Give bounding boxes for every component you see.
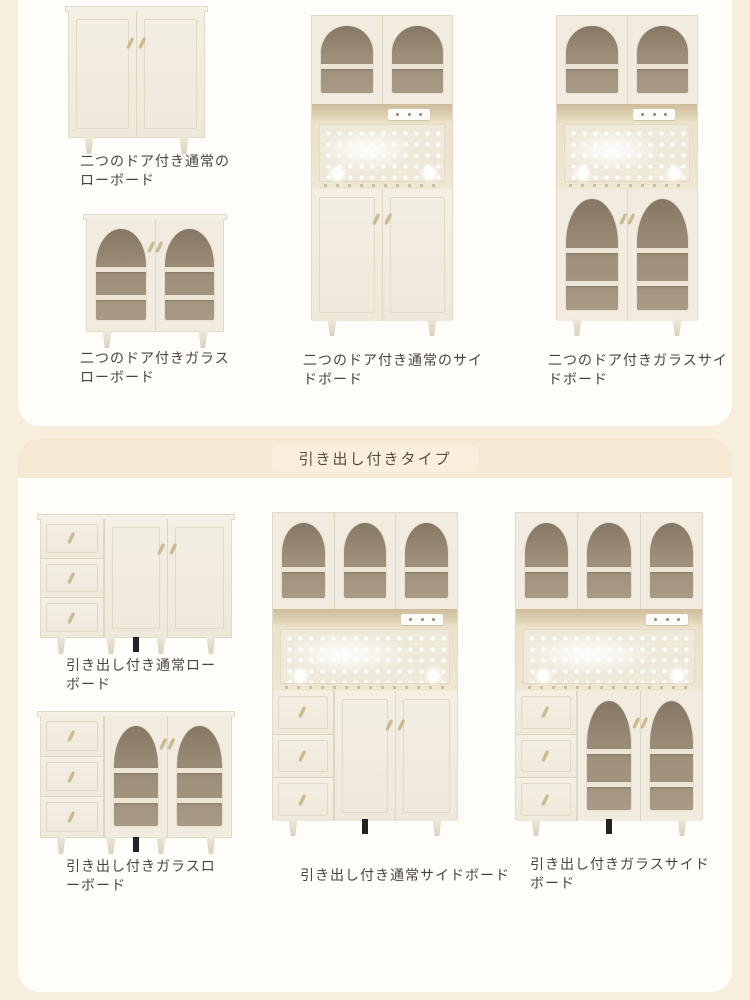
upper-glass-section [516,513,702,609]
arched-glass-window [281,522,326,599]
section-header-band: 引き出し付きタイプ [18,438,732,478]
glass-door [155,219,224,331]
glass-door [87,219,155,331]
drawer-column [41,716,104,837]
outlet-socket-dot [432,618,435,621]
vent-slots [528,686,690,689]
door-inset-panel [144,19,197,129]
cabinet-door [395,691,457,821]
lower-glass-section [557,189,697,321]
glass-door [577,691,639,821]
shelf-line [587,782,630,787]
shelf-line [637,248,689,253]
power-outlet [633,109,675,120]
arched-glass-window [320,25,374,94]
arched-glass-window [95,228,147,321]
arched-glass-window [565,25,619,94]
vent-slots [569,184,685,187]
product-label: 二つのドア付きガラスローボード [80,349,238,387]
shelf-line [566,281,618,286]
glass-door [640,691,702,821]
shelf-line [525,567,568,572]
outlet-socket-dot [654,618,657,621]
shelf-line [637,64,689,69]
cabinet-figure-drawer-glass-lowboard [40,715,232,838]
shelf-line [405,567,448,572]
product-label: 引き出し付きガラスローボード [66,857,224,895]
cabinet-leg [530,819,542,836]
cabinet-figure-two-door-glass-sideboard [556,15,698,320]
door-inset-panel [175,527,224,629]
door-inset-panel [403,699,450,813]
arched-glass-window [649,522,694,599]
outlet-socket-dot [419,113,422,116]
cabinet-legs [571,319,683,336]
door-row [273,513,457,609]
glass-door [577,513,639,609]
door-handle [155,241,163,252]
door-handle [627,213,635,224]
glass-door [640,513,702,609]
product-label: 引き出し付きガラスサイドボード [530,855,716,893]
drawer-column [516,691,577,821]
section-door-types: 二つのドア付き通常のローボード [18,0,732,426]
shelf-line [114,798,159,803]
arched-glass-window [565,198,619,311]
cabinet-door [167,519,231,637]
cabinet-door [136,11,204,137]
drawer-column [41,519,104,637]
cabinet-leg [197,331,209,348]
cabinet-leg [101,331,113,348]
shelf-line [177,798,222,803]
cabinet-leg [155,637,167,654]
section-title: 引き出し付きタイプ [272,445,477,472]
door-inset-panel [390,197,446,313]
outlet-socket-dot [653,113,656,116]
outlet-socket-dot [396,113,399,116]
shelf-line [650,749,693,754]
door-row [69,11,204,137]
shelf-line [96,267,146,272]
lower-drawer-glass-section [516,691,702,821]
shelf-line [650,782,693,787]
glass-door [627,189,698,321]
cabinet-leg [205,837,217,854]
drawer-front [516,691,576,735]
front-row [273,691,457,821]
shelf-line [566,64,618,69]
drawer-front [516,778,576,821]
drawer-front [516,735,576,779]
shelf-line [165,267,215,272]
shelf-line [321,64,373,69]
shelf-line [392,64,444,69]
cabinet-door [382,189,453,321]
cabinet-leg [326,319,338,336]
product-label: 二つのドア付き通常のサイドボード [303,351,489,389]
shelf-line [344,567,387,572]
door-inset-panel [342,699,389,813]
shelf-line [282,567,325,572]
outlet-socket-dot [664,113,667,116]
cabinet-figure-drawer-glass-sideboard [515,512,703,820]
door-inset-panel [76,19,129,129]
cabinet-door [312,189,382,321]
upper-glass-section [312,16,452,104]
cabinet-figure-drawer-plain-sideboard [272,512,458,820]
shelf-line [587,567,630,572]
cabinet-figure-two-door-glass-lowboard [86,218,224,332]
adjustable-foot [133,637,139,652]
arched-glass-window [586,522,631,599]
drawer-front [41,598,103,637]
glass-door [104,716,168,837]
glass-door [557,189,627,321]
lower-drawer-door-section [273,691,457,821]
arched-glass-window [636,25,690,94]
front-row [41,716,231,837]
arched-glass-window [586,700,631,811]
glass-door [382,16,453,104]
drawer-front [273,778,333,821]
glass-door [312,16,382,104]
cabinet-leg [287,819,299,836]
cabinet-door [104,519,168,637]
door-row [516,513,702,609]
open-hutch-section [273,609,457,691]
cabinet-leg [431,819,443,836]
shelf-line [177,768,222,773]
cabinet-leg [205,637,217,654]
shelf-line [650,567,693,572]
vent-slots [285,686,445,689]
cabinet-leg [676,819,688,836]
door-handle [640,717,648,728]
shelf-line [637,281,689,286]
cabinet-leg [55,637,67,654]
arched-glass-window [404,522,449,599]
glass-door [516,513,577,609]
shelf-line [165,295,215,300]
cabinet-legs [101,331,209,348]
arched-glass-window [164,228,216,321]
arched-glass-window [391,25,445,94]
drawer-front [41,797,103,837]
cabinet-leg [55,837,67,854]
cabinet-leg [105,637,117,654]
arched-glass-window [113,725,160,827]
cable-hole [428,670,439,681]
power-outlet [401,614,443,625]
vent-slots [324,184,440,187]
cabinet-figure-two-door-plain-lowboard [68,10,205,138]
product-label: 二つのドア付きガラスサイドボード [548,351,734,389]
glass-door [167,716,231,837]
shelf-line [587,749,630,754]
power-outlet [646,614,688,625]
drawer-front [41,559,103,599]
door-row [312,189,452,321]
arched-glass-window [176,725,223,827]
shelf-line [566,248,618,253]
drawer-front [41,519,103,559]
drawer-front [273,735,333,779]
arched-glass-window [649,700,694,811]
lower-door-section [312,189,452,321]
front-row [516,691,702,821]
outlet-socket-dot [409,618,412,621]
adjustable-foot [362,819,368,834]
glass-door [334,513,396,609]
outlet-socket-dot [666,618,669,621]
product-label: 引き出し付き通常ローボード [66,656,224,694]
cabinet-leg [105,837,117,854]
cable-hole [669,168,680,179]
drawer-column [273,691,334,821]
cabinet-legs [326,319,438,336]
product-description-page: 二つのドア付き通常のローボード [0,0,750,1000]
cabinet-leg [155,837,167,854]
cabinet-leg [426,319,438,336]
upper-glass-section [557,16,697,104]
glass-door [557,16,627,104]
adjustable-foot [606,819,612,834]
front-row [41,519,231,637]
door-handle [168,738,176,749]
glass-door [627,16,698,104]
open-hutch-section [516,609,702,691]
arched-glass-window [343,522,388,599]
open-hutch-section [312,104,452,189]
product-label: 引き出し付き通常サイドボード [300,866,510,885]
arched-glass-window [524,522,569,599]
door-row [557,189,697,321]
door-inset-panel [319,197,375,313]
upper-glass-section [273,513,457,609]
drawer-front [273,691,333,735]
cable-hole [332,168,343,179]
cabinet-door [69,11,136,137]
cabinet-figure-two-door-plain-sideboard [311,15,453,320]
door-row [87,219,223,331]
cable-hole [424,168,435,179]
outlet-socket-dot [677,618,680,621]
section-drawer-types: 引き出し付きタイプ [18,438,732,992]
cabinet-leg [571,319,583,336]
shelf-line [96,295,146,300]
cabinet-figure-drawer-plain-lowboard [40,518,232,638]
glass-door [273,513,334,609]
drawer-front [41,716,103,757]
cabinet-door [334,691,396,821]
cable-hole [577,168,588,179]
glass-door [395,513,457,609]
adjustable-foot [133,837,139,852]
power-outlet [388,109,430,120]
outlet-socket-dot [408,113,411,116]
open-hutch-section [557,104,697,189]
door-row [312,16,452,104]
outlet-socket-dot [421,618,424,621]
arched-glass-window [636,198,690,311]
cabinet-leg [671,319,683,336]
door-row [557,16,697,104]
shelf-line [114,768,159,773]
door-inset-panel [112,527,161,629]
product-label: 二つのドア付き通常のローボード [80,152,238,190]
drawer-front [41,757,103,798]
outlet-socket-dot [641,113,644,116]
